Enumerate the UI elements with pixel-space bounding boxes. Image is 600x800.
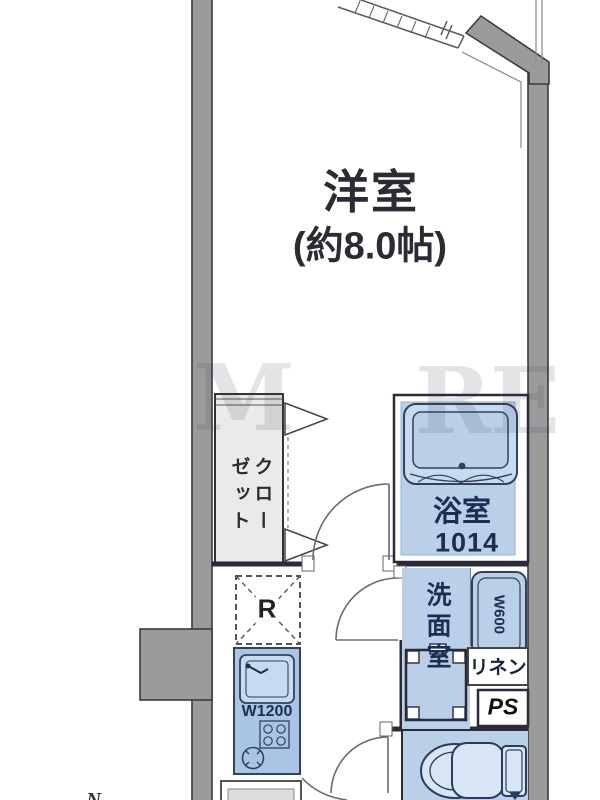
washroom-door	[336, 578, 398, 640]
closet-label: クロー ゼット	[227, 457, 274, 538]
refrigerator-label: R	[256, 594, 279, 625]
door-jambs	[302, 556, 406, 736]
washer-pan-label: W600	[491, 585, 508, 645]
main-room-door	[313, 484, 389, 560]
north-indicator: N	[86, 790, 120, 800]
entrance-door-arc	[302, 778, 347, 800]
toilet-fixture	[421, 743, 526, 800]
main-room-label: 洋室	[323, 156, 419, 222]
kitchen-size-label: W1200	[242, 703, 293, 721]
watermark-letter-e: E	[490, 355, 560, 447]
bathroom-size-label: 1014	[435, 528, 499, 559]
washroom-label: 洗面室	[419, 582, 455, 675]
bathroom-label: 浴室	[433, 488, 491, 530]
watermark-letter-r: R	[415, 355, 491, 447]
toilet-room	[403, 731, 528, 800]
entry-step-box	[221, 781, 301, 800]
watermark-letter-m: M	[193, 352, 295, 444]
inner-wall-face-line	[462, 52, 521, 148]
main-room-size-label: (約8.0帖)	[293, 215, 447, 270]
toilet-door	[331, 737, 388, 793]
window-diagonal	[338, 0, 464, 48]
pipe-space-label: PS	[488, 694, 519, 721]
floorplan: 洋室 (約8.0帖) クロー ゼット 浴室 1014 洗面室 W600 リネン …	[0, 0, 600, 800]
left-wall-pillar	[140, 629, 212, 700]
kitchen-sink	[240, 655, 294, 703]
linen-label: リネン	[469, 653, 526, 680]
